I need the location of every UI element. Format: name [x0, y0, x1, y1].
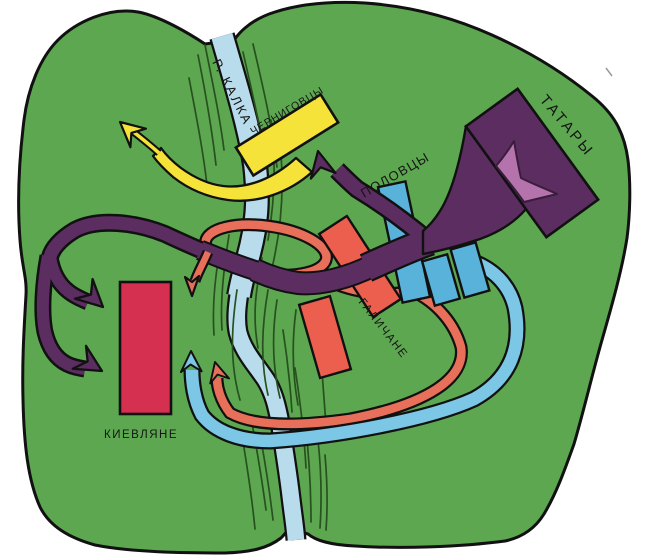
svg-text:КИЕВЛЯНЕ: КИЕВЛЯНЕ — [104, 429, 178, 441]
